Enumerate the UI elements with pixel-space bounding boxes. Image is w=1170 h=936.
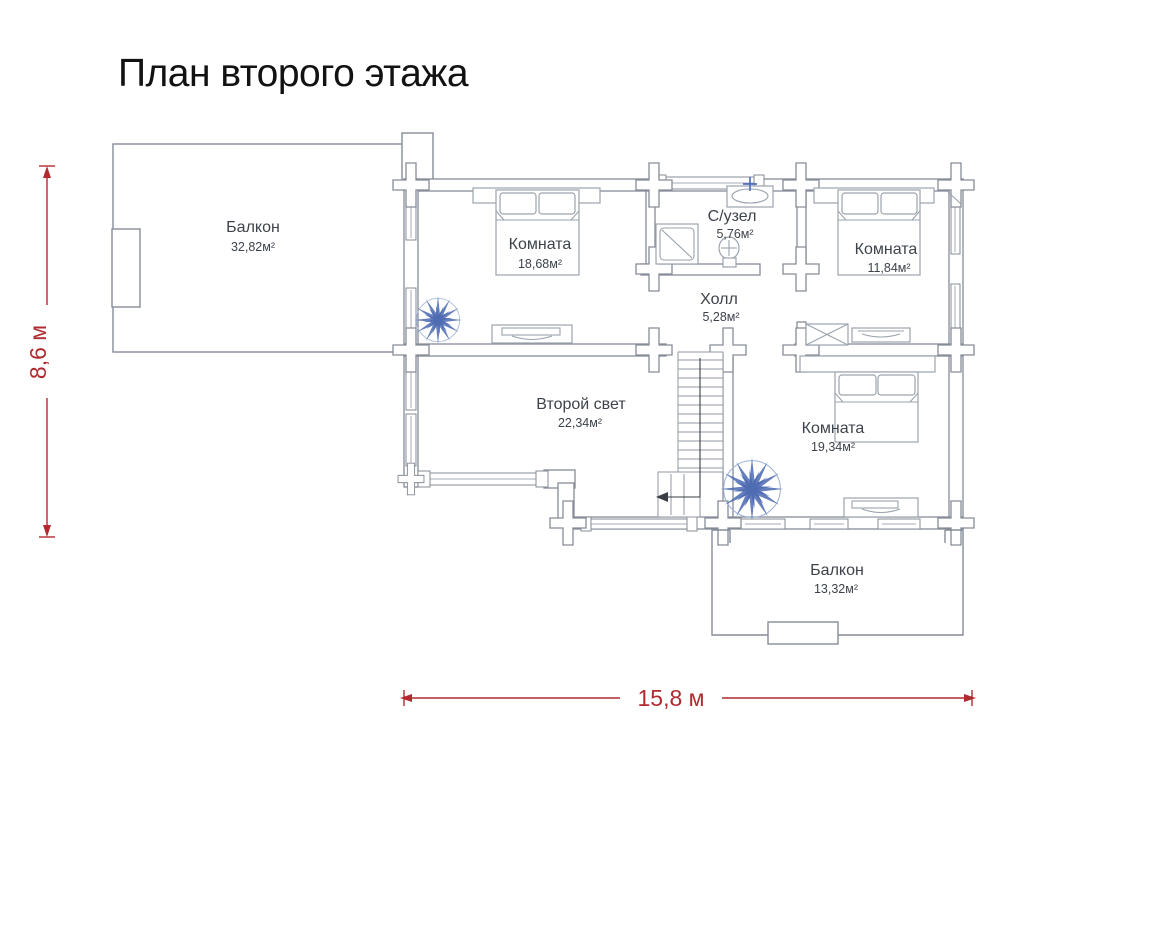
second-light-area: 22,34м²: [558, 416, 602, 430]
floor-plan-page: План второго этажа: [0, 0, 1170, 936]
bedroom2-area: 11,84м²: [867, 261, 910, 275]
bedroom2-name: Комната: [855, 241, 918, 258]
bedroom3-area: 19,34м²: [811, 440, 855, 454]
height-dimension-label: 8,6 м: [25, 325, 51, 379]
shower-icon: [656, 224, 698, 264]
balcony-top-name: Балкон: [226, 219, 280, 236]
bathroom-area: 5,76м²: [716, 227, 753, 241]
window-secondlight-bottom: [418, 471, 548, 487]
floor-plan-drawing: Балкон 32,82м² Комната 18,68м² С/узел 5,…: [0, 0, 1170, 936]
balcony-top-area: 32,82м²: [231, 240, 275, 254]
toilet-icon: [719, 237, 739, 267]
width-dimension: 15,8 м: [400, 685, 976, 711]
dresser-icon: [852, 328, 910, 342]
hall-name: Холл: [700, 291, 738, 308]
window-left-lower: [406, 368, 416, 466]
headboard-shelf-icon: [800, 356, 935, 372]
bathroom-name: С/узел: [708, 208, 757, 225]
stairs-icon: [656, 352, 723, 517]
balcony-bottom-name: Балкон: [810, 562, 864, 579]
shaft-box-icon: [806, 324, 848, 345]
bedroom1-furniture: [414, 188, 600, 344]
hall-area: 5,28м²: [702, 310, 739, 324]
balcony-ladder-box: [112, 229, 140, 307]
bedroom1-area: 18,68м²: [518, 257, 562, 271]
width-dimension-label: 15,8 м: [638, 685, 705, 711]
balcony-bottom-area: 13,32м²: [814, 582, 858, 596]
dresser-icon: [492, 325, 572, 343]
bedroom1-name: Комната: [509, 236, 572, 253]
dresser-icon: [844, 498, 918, 517]
bedroom3-name: Комната: [802, 420, 865, 437]
second-light-name: Второй свет: [536, 396, 626, 413]
plant-icon: [414, 296, 462, 344]
height-dimension: 8,6 м: [25, 166, 55, 537]
bedroom3-furniture: [721, 356, 936, 521]
balcony-step-box: [768, 622, 838, 644]
